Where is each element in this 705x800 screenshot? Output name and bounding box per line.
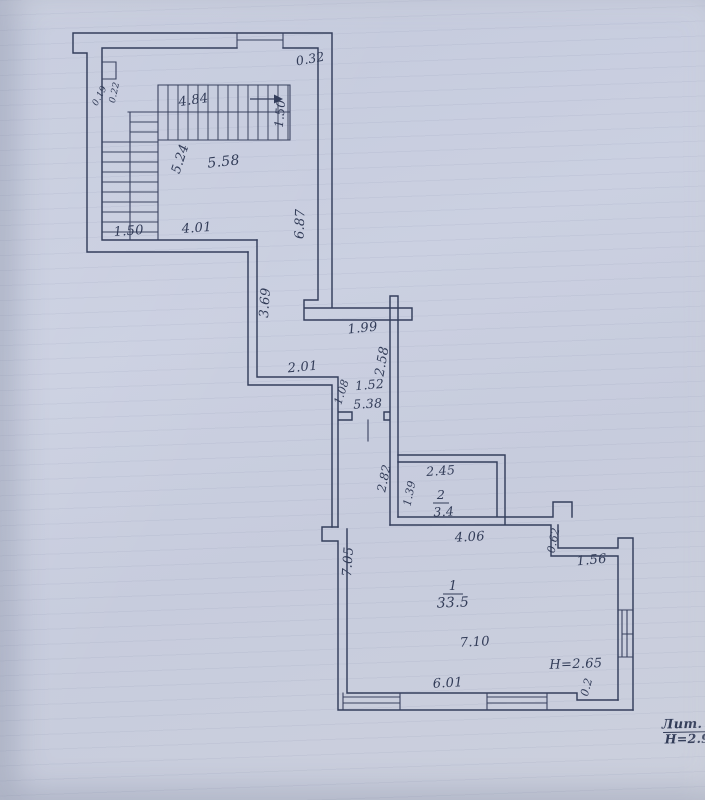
dim-5-38: 5.38 [353, 395, 383, 411]
dim-7-10: 7.10 [459, 634, 490, 651]
dim-4-84: 4.84 [177, 91, 210, 110]
room1-area: 33.5 [436, 594, 469, 611]
floor-plan-svg: 0.320.190.224.841.505.245.586.871.504.01… [0, 0, 705, 800]
litera-height: Н=2.96 [664, 731, 705, 747]
room1-bottom-window-right [487, 693, 547, 710]
dim-1-50: 1.50 [113, 223, 144, 240]
room2-area: 3.4 [433, 503, 455, 519]
dim-6-01: 6.01 [432, 675, 463, 692]
dim-5-24: 5.24 [169, 142, 193, 175]
dim-2-01: 2.01 [286, 359, 318, 377]
dim-5-58: 5.58 [207, 152, 241, 171]
room2-walls [390, 455, 633, 710]
duct-notch [102, 62, 116, 79]
dim-4-01: 4.01 [180, 220, 212, 237]
scanned-floor-plan-photo: 0.320.190.224.841.505.245.586.871.504.01… [0, 0, 705, 800]
room1-side-window [618, 610, 633, 657]
dim-2-82: 2.82 [374, 463, 394, 494]
stairwell-walls [73, 33, 412, 320]
stairwell-window [237, 33, 283, 48]
room2-number: 2 [436, 487, 445, 502]
dim-0-62: 0.62 [545, 526, 563, 554]
dim-1-08: 1.08 [332, 378, 352, 406]
dim-4-06: 4.06 [453, 529, 485, 546]
dim-3-69: 3.69 [257, 287, 274, 318]
dim-6-87: 6.87 [292, 208, 308, 239]
dim-1-39: 1.39 [401, 479, 419, 507]
dim-0-22: 0.22 [108, 81, 122, 104]
room1-bottom-window-left [343, 693, 400, 710]
dim-1-50-stair: 1.50 [272, 99, 288, 128]
dim-1-99: 1.99 [347, 319, 379, 337]
room1-number: 1 [449, 579, 458, 594]
dim-0-2: 0.2 [578, 677, 595, 698]
dim-1-56: 1.56 [576, 552, 607, 570]
ceiling-height-room1: H=2.65 [548, 656, 602, 673]
dim-0-19: 0.19 [91, 84, 110, 107]
dim-2-45: 2.45 [425, 462, 456, 479]
dim-7-05: 7.05 [340, 546, 357, 577]
dim-0-32: 0.32 [295, 49, 326, 69]
dim-1-52: 1.52 [354, 376, 384, 393]
